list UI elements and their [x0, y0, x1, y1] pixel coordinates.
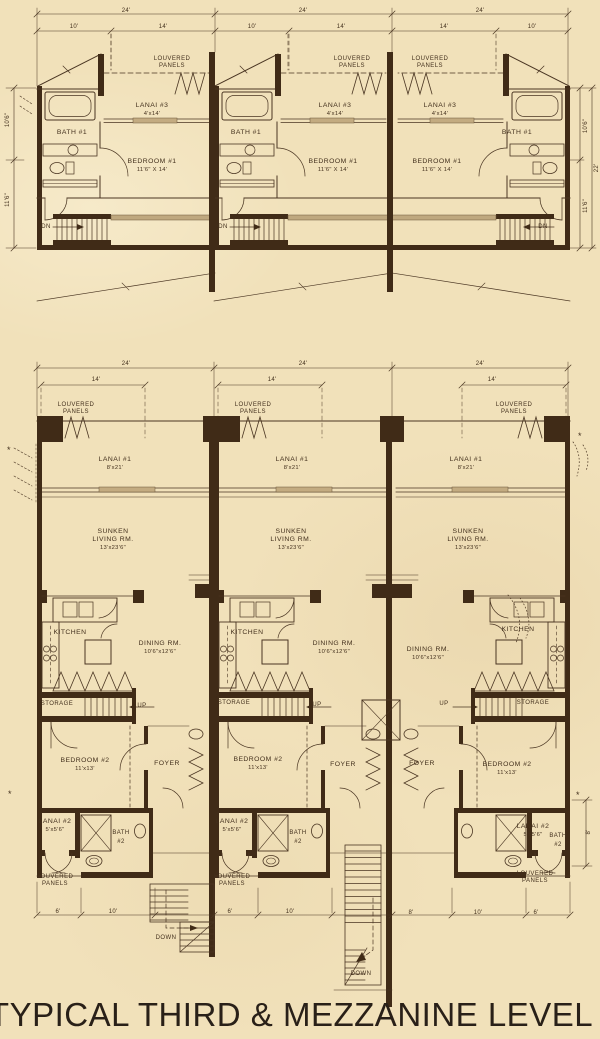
- room-size-lanai1: 8'x21': [107, 465, 124, 471]
- asterisk-note-mark: *: [576, 791, 580, 800]
- dim-10ft: 10': [70, 24, 78, 30]
- dim-24ft: 24': [299, 8, 307, 14]
- dim-8ft: 8': [586, 830, 592, 835]
- room-label-sunken-living: SUNKEN: [452, 528, 483, 535]
- room-size-lanai3: 4'x14': [327, 111, 344, 117]
- dim-14ft: 14': [337, 24, 345, 30]
- dim-24ft: 24': [476, 8, 484, 14]
- room-size-sunken-living: 13'x23'6": [278, 545, 304, 551]
- asterisk-note-mark: *: [578, 432, 582, 441]
- stair-label-up: UP: [439, 701, 448, 707]
- dim-10ft: 10': [474, 910, 482, 916]
- asterisk-note-mark: *: [8, 790, 12, 799]
- room-size-bedroom2: 11'x13': [497, 770, 517, 776]
- dim-10ft: 10': [528, 24, 536, 30]
- room-label-bath2: #2: [117, 839, 125, 845]
- asterisk-note-mark: *: [7, 446, 11, 455]
- room-label-dining: DINING RM.: [313, 640, 356, 647]
- room-label-louvered-panels: PANELS: [219, 881, 245, 887]
- room-label-foyer: FOYER: [330, 761, 356, 768]
- room-label-louvered-panels: PANELS: [417, 63, 443, 69]
- stair-label-dn: DN: [538, 224, 548, 230]
- room-label-louvered-panels: LOUVERED: [496, 402, 533, 408]
- room-label-louvered-panels: PANELS: [339, 63, 365, 69]
- room-label-bath2: BATH: [549, 833, 566, 839]
- dim-24ft: 24': [122, 361, 130, 367]
- room-label-lanai2: LANAI #2: [517, 823, 550, 830]
- room-label-louvered-panels: LOUVERED: [37, 874, 74, 880]
- room-size-dining: 10'6"x12'6": [318, 649, 350, 655]
- floor-plan-drawing: [0, 0, 600, 1039]
- room-label-sunken-living: LIVING RM.: [447, 536, 488, 543]
- room-label-louvered-panels: LOUVERED: [517, 871, 554, 877]
- dim-11ft6: 11'6": [5, 193, 11, 207]
- room-label-lanai3: LANAI #3: [424, 102, 457, 109]
- room-size-bedroom2: 11'x13': [248, 765, 268, 771]
- room-label-sunken-living: SUNKEN: [275, 528, 306, 535]
- room-label-bath1: BATH #1: [231, 129, 261, 136]
- blueprint-page: 24' 24' 24' 10' 14' 10' 14' 14' 10' LOUV…: [0, 0, 600, 1039]
- room-size-lanai1: 8'x21': [458, 465, 475, 471]
- dim-24ft: 24': [476, 361, 484, 367]
- dim-10ft6: 10'6": [583, 119, 589, 133]
- room-size-bedroom1: 11'6" X 14': [318, 167, 348, 173]
- dim-11ft6: 11'6": [583, 199, 589, 213]
- dim-6ft: 6': [534, 910, 539, 916]
- stair-label-dn: DN: [41, 224, 51, 230]
- room-label-louvered-panels: LOUVERED: [58, 402, 95, 408]
- room-label-bath2: #2: [294, 839, 302, 845]
- stair-label-down: DOWN: [351, 971, 372, 977]
- room-label-bath1: BATH #1: [502, 129, 532, 136]
- room-label-sunken-living: SUNKEN: [97, 528, 128, 535]
- room-label-bath2: #2: [554, 842, 562, 848]
- room-size-lanai1: 8'x21': [284, 465, 301, 471]
- stair-label-up: UP: [312, 702, 321, 708]
- room-label-louvered-panels: LOUVERED: [412, 56, 449, 62]
- room-label-bath2: BATH: [112, 830, 129, 836]
- dim-8ft: 8': [409, 910, 414, 916]
- room-label-bedroom2: BEDROOM #2: [60, 757, 109, 764]
- room-label-kitchen: KITCHEN: [502, 626, 535, 633]
- room-size-lanai3: 4'x14': [144, 111, 161, 117]
- dim-22ft: 22': [594, 164, 600, 172]
- room-label-lanai3: LANAI #3: [136, 102, 169, 109]
- room-label-foyer: FOYER: [409, 760, 435, 767]
- room-label-storage: STORAGE: [41, 701, 73, 707]
- room-label-sunken-living: LIVING RM.: [270, 536, 311, 543]
- room-size-lanai3: 4'x14': [432, 111, 449, 117]
- room-size-lanai2: 5'x5'6": [46, 827, 65, 833]
- room-label-kitchen: KITCHEN: [231, 629, 264, 636]
- room-label-dining: DINING RM.: [407, 646, 450, 653]
- room-label-foyer: FOYER: [154, 760, 180, 767]
- room-size-dining: 10'6"x12'6": [144, 649, 176, 655]
- plan-title: TYPICAL THIRD & MEZZANINE LEVEL: [0, 996, 593, 1034]
- room-label-lanai1: LANAI #1: [276, 456, 309, 463]
- room-label-lanai2: LANAI #2: [39, 818, 72, 825]
- dim-10ft: 10': [109, 909, 117, 915]
- room-label-louvered-panels: LOUVERED: [235, 402, 272, 408]
- room-label-bath2: BATH: [289, 830, 306, 836]
- stair-label-dn: DN: [218, 224, 228, 230]
- room-label-kitchen: KITCHEN: [54, 629, 87, 636]
- dim-6ft: 6': [228, 909, 233, 915]
- room-label-louvered-panels: PANELS: [42, 881, 68, 887]
- dim-10ft: 10': [286, 909, 294, 915]
- room-label-lanai1: LANAI #1: [450, 456, 483, 463]
- dim-14ft: 14': [159, 24, 167, 30]
- dim-14ft: 14': [440, 24, 448, 30]
- room-label-bedroom2: BEDROOM #2: [233, 756, 282, 763]
- room-label-sunken-living: LIVING RM.: [92, 536, 133, 543]
- room-label-bath1: BATH #1: [57, 129, 87, 136]
- room-label-dining: DINING RM.: [139, 640, 182, 647]
- room-size-sunken-living: 13'x23'6": [455, 545, 481, 551]
- dim-10ft: 10': [248, 24, 256, 30]
- stair-label-down: DOWN: [156, 935, 177, 941]
- room-label-bedroom1: BEDROOM #1: [308, 158, 357, 165]
- dim-6ft: 6': [56, 909, 61, 915]
- room-size-bedroom2: 11'x13': [75, 766, 95, 772]
- room-label-storage: STORAGE: [218, 700, 250, 706]
- dim-10ft6: 10'6": [5, 113, 11, 127]
- room-size-sunken-living: 13'x23'6": [100, 545, 126, 551]
- room-label-lanai3: LANAI #3: [319, 102, 352, 109]
- room-label-louvered-panels: PANELS: [159, 63, 185, 69]
- dim-14ft: 14': [92, 377, 100, 383]
- room-label-louvered-panels: PANELS: [240, 409, 266, 415]
- room-label-bedroom1: BEDROOM #1: [127, 158, 176, 165]
- room-label-bedroom2: BEDROOM #2: [482, 761, 531, 768]
- room-label-storage: STORAGE: [517, 700, 549, 706]
- room-size-dining: 10'6"x12'6": [412, 655, 444, 661]
- room-size-bedroom1: 11'6" X 14': [137, 167, 167, 173]
- room-label-louvered-panels: LOUVERED: [334, 56, 371, 62]
- room-label-louvered-panels: PANELS: [501, 409, 527, 415]
- stair-label-up: UP: [137, 703, 146, 709]
- room-label-louvered-panels: LOUVERED: [154, 56, 191, 62]
- dim-14ft: 14': [268, 377, 276, 383]
- room-label-lanai2: LANAI #2: [216, 818, 249, 825]
- dim-24ft: 24': [122, 8, 130, 14]
- room-size-lanai2: 5'x5'6": [524, 832, 543, 838]
- dim-14ft: 14': [488, 377, 496, 383]
- room-label-louvered-panels: PANELS: [522, 878, 548, 884]
- room-label-lanai1: LANAI #1: [99, 456, 132, 463]
- room-size-bedroom1: 11'6" X 14': [422, 167, 452, 173]
- room-size-lanai2: 5'x5'6": [223, 827, 242, 833]
- room-label-louvered-panels: PANELS: [63, 409, 89, 415]
- dim-24ft: 24': [299, 361, 307, 367]
- room-label-bedroom1: BEDROOM #1: [412, 158, 461, 165]
- room-label-louvered-panels: LOUVERED: [214, 874, 251, 880]
